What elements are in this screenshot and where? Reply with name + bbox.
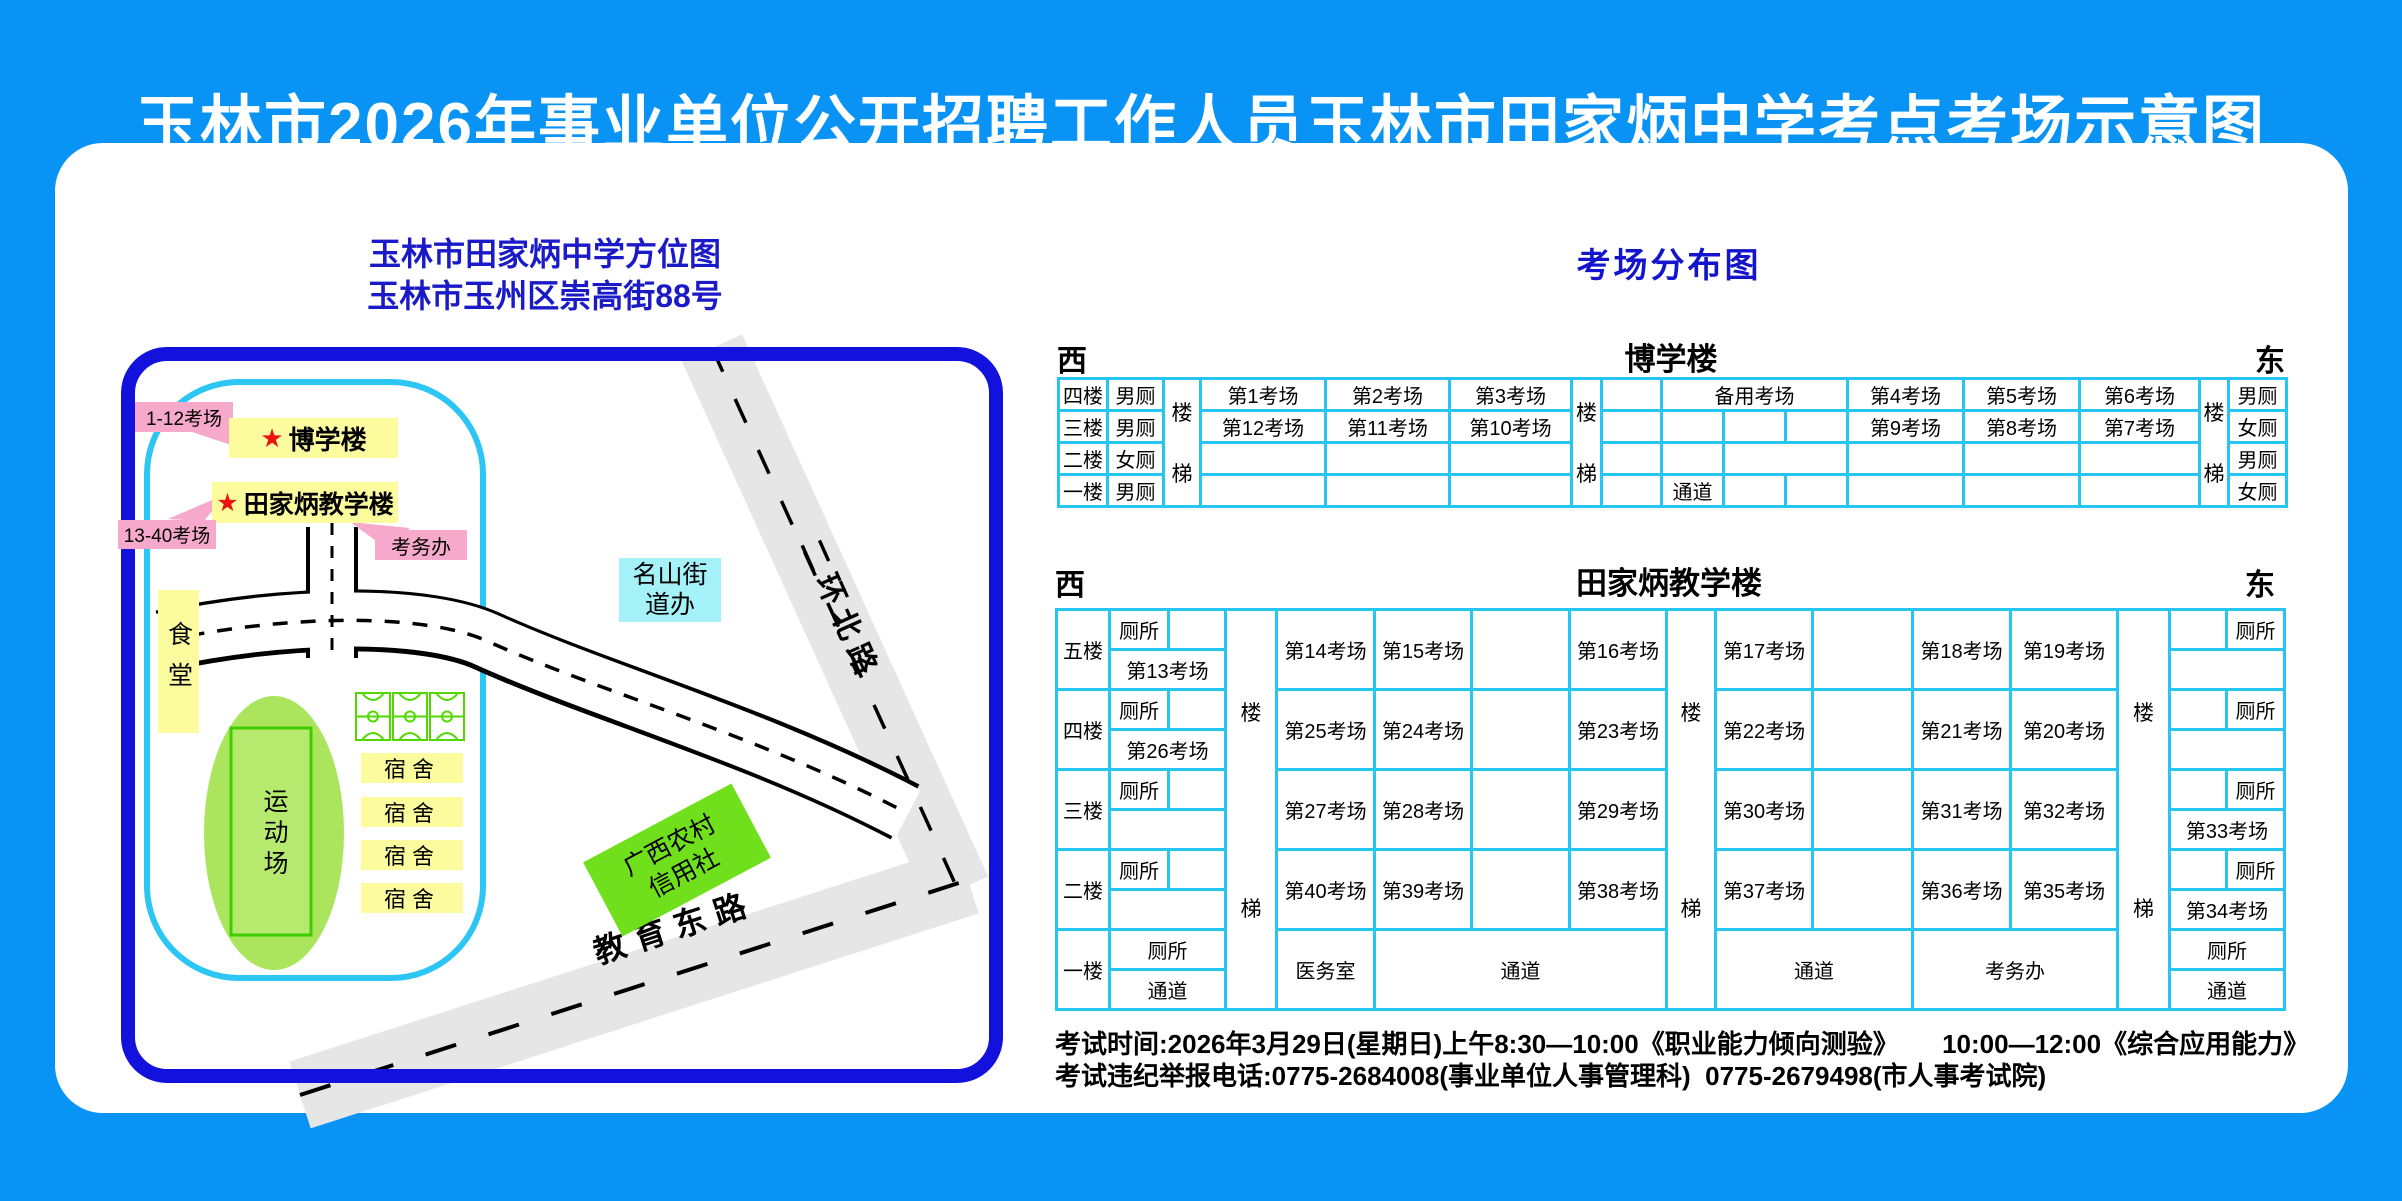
empty-cell — [1450, 443, 1572, 475]
label-street-office: 名山街 道办 — [619, 558, 721, 622]
room-cell: 第21考场 — [1913, 690, 2011, 770]
distribution-title: 考场分布图 — [1055, 238, 2283, 287]
empty-cell — [2170, 730, 2285, 770]
empty-cell — [2080, 475, 2200, 507]
empty-cell — [1602, 411, 1662, 443]
empty-cell — [1964, 475, 2080, 507]
toilet-cell: 男厕 — [2229, 443, 2287, 475]
table2-east-label: 东 — [1055, 560, 2275, 604]
room-cell: 第30考场 — [1716, 770, 1813, 850]
passage-cell: 通道 — [2170, 970, 2285, 1010]
empty-cell — [2080, 443, 2200, 475]
empty-cell — [1724, 443, 1848, 475]
dorm-text: 宿舍 — [384, 882, 440, 914]
passage-cell: 通道 — [1375, 930, 1667, 1010]
room-cell: 第28考场 — [1375, 770, 1472, 850]
empty-cell — [1848, 443, 1964, 475]
empty-cell — [1472, 850, 1570, 930]
room-cell: 第38考场 — [1570, 850, 1667, 930]
room-cell: 第25考场 — [1277, 690, 1375, 770]
room-cell: 第39考场 — [1375, 850, 1472, 930]
toilet-cell: 男厕 — [1108, 475, 1164, 507]
floor-cell: 三楼 — [1057, 770, 1110, 850]
dorm-text: 宿舍 — [384, 796, 440, 828]
empty-cell — [1169, 850, 1226, 890]
floor-cell: 二楼 — [1059, 443, 1108, 475]
room-cell: 第35考场 — [2011, 850, 2118, 930]
room-cell: 第29考场 — [1570, 770, 1667, 850]
stair-bottom: 梯 — [2204, 458, 2225, 488]
dorm-text: 宿舍 — [384, 839, 440, 871]
stair-top: 楼 — [1241, 697, 1262, 727]
floor-cell: 四楼 — [1057, 690, 1110, 770]
stair-top: 楼 — [1576, 397, 1597, 427]
room-cell: 第11考场 — [1326, 411, 1450, 443]
room-cell: 第15考场 — [1375, 610, 1472, 690]
room-cell: 第13考场 — [1110, 650, 1226, 690]
toilet-cell: 厕所 — [1110, 610, 1169, 650]
table2-row-f5a: 五楼 厕所 楼梯 第14考场 第15考场 第16考场 楼梯 第17考场 第18考… — [1057, 610, 2285, 650]
room-cell: 第14考场 — [1277, 610, 1375, 690]
toilet-cell: 厕所 — [2227, 690, 2285, 730]
empty-cell — [1110, 810, 1226, 850]
table1-east-label: 东 — [1057, 336, 2285, 380]
room-cell: 第20考场 — [2011, 690, 2118, 770]
room-cell: 第3考场 — [1450, 379, 1572, 411]
empty-cell — [1813, 850, 1913, 930]
toilet-cell: 女厕 — [2229, 475, 2287, 507]
stair-cell: 楼梯 — [2200, 379, 2229, 507]
exam-office-map-text: 考务办 — [391, 531, 451, 560]
empty-cell — [1169, 770, 1226, 810]
empty-cell — [1602, 443, 1662, 475]
stair-top: 楼 — [1681, 697, 1702, 727]
toilet-cell: 厕所 — [1110, 690, 1169, 730]
stair-bottom: 梯 — [1172, 458, 1193, 488]
toilet-cell: 厕所 — [1110, 930, 1226, 970]
label-dorm-4: 宿舍 — [361, 883, 463, 913]
room-cell: 第23考场 — [1570, 690, 1667, 770]
room-cell: 第36考场 — [1913, 850, 2011, 930]
empty-cell — [1472, 610, 1570, 690]
stair-cell: 楼梯 — [1164, 379, 1201, 507]
toilet-cell: 女厕 — [1108, 443, 1164, 475]
stair-bottom: 梯 — [1241, 893, 1262, 923]
room-cell: 第18考场 — [1913, 610, 2011, 690]
toilet-cell: 厕所 — [2227, 610, 2285, 650]
empty-cell — [1662, 411, 1724, 443]
floor-cell: 五楼 — [1057, 610, 1110, 690]
label-dorm-3: 宿舍 — [361, 840, 463, 870]
empty-cell — [1110, 890, 1226, 930]
label-canteen: 食堂 — [158, 590, 199, 733]
boxue-building-table: 四楼 男厕 楼梯 第1考场 第2考场 第3考场 楼梯 备用考场 第4考场 第5考… — [1057, 377, 2288, 508]
toilet-cell: 厕所 — [2170, 930, 2285, 970]
empty-cell — [1472, 770, 1570, 850]
empty-cell — [1813, 690, 1913, 770]
room-cell: 第40考场 — [1277, 850, 1375, 930]
room-cell: 第31考场 — [1913, 770, 2011, 850]
map-header-line2: 玉林市玉州区崇高街88号 — [125, 276, 965, 318]
table1-row-floor4: 四楼 男厕 楼梯 第1考场 第2考场 第3考场 楼梯 备用考场 第4考场 第5考… — [1059, 379, 2287, 411]
room-cell: 第17考场 — [1716, 610, 1813, 690]
empty-cell — [1472, 690, 1570, 770]
stair-top: 楼 — [2133, 697, 2154, 727]
empty-cell — [2170, 690, 2227, 730]
room-cell: 第6考场 — [2080, 379, 2200, 411]
room-cell: 第26考场 — [1110, 730, 1226, 770]
toilet-cell: 厕所 — [1110, 850, 1169, 890]
exam-office-cell: 考务办 — [1913, 930, 2118, 1010]
boxue-text: 博学楼 — [289, 420, 367, 457]
map-header-line1: 玉林市田家炳中学方位图 — [125, 234, 965, 276]
room-cell: 第27考场 — [1277, 770, 1375, 850]
empty-cell — [1326, 475, 1450, 507]
empty-cell — [1813, 770, 1913, 850]
sports-field-text: 运动场 — [256, 788, 292, 881]
empty-cell — [1201, 443, 1326, 475]
passage-cell: 通道 — [1110, 970, 1226, 1010]
empty-cell — [1602, 475, 1662, 507]
stair-top: 楼 — [2204, 397, 2225, 427]
toilet-cell: 男厕 — [1108, 411, 1164, 443]
stair-bottom: 梯 — [2133, 893, 2154, 923]
empty-cell — [1724, 411, 1786, 443]
stair-cell: 楼梯 — [2118, 610, 2170, 1010]
stair-cell: 楼梯 — [1572, 379, 1602, 507]
table1-row-floor1: 一楼 男厕 通道 女厕 — [1059, 475, 2287, 507]
empty-cell — [2170, 610, 2227, 650]
table1-row-floor3: 三楼 男厕 第12考场 第11考场 第10考场 第9考场 第8考场 第7考场 女… — [1059, 411, 2287, 443]
toilet-cell: 厕所 — [1110, 770, 1169, 810]
floor-cell: 一楼 — [1057, 930, 1110, 1010]
stair-bottom: 梯 — [1576, 458, 1597, 488]
label-exam-office-map: 考务办 — [375, 530, 467, 560]
label-dorm-2: 宿舍 — [361, 797, 463, 827]
room-cell: 第32考场 — [2011, 770, 2118, 850]
table1-row-floor2: 二楼 女厕 男厕 — [1059, 443, 2287, 475]
empty-cell — [1813, 610, 1913, 690]
street-office-line2: 道办 — [632, 590, 707, 620]
toilet-cell: 女厕 — [2229, 411, 2287, 443]
empty-cell — [2170, 650, 2285, 690]
passage-cell: 通道 — [1716, 930, 1913, 1010]
passage-cell: 通道 — [1662, 475, 1724, 507]
room-cell: 第34考场 — [2170, 890, 2285, 930]
floor-cell: 一楼 — [1059, 475, 1108, 507]
room-cell: 第16考场 — [1570, 610, 1667, 690]
empty-cell — [1450, 475, 1572, 507]
label-sports-field: 运动场 — [252, 772, 296, 896]
empty-cell — [1201, 475, 1326, 507]
room-cell: 第24考场 — [1375, 690, 1472, 770]
empty-cell — [1724, 475, 1786, 507]
tianjiabing-text: 田家炳教学楼 — [244, 485, 394, 521]
label-rooms-1-12: 1-12考场 — [135, 402, 233, 432]
room-cell: 第4考场 — [1848, 379, 1964, 411]
room-cell: 第19考场 — [2011, 610, 2118, 690]
empty-cell — [1786, 475, 1848, 507]
label-rooms-1-12-text: 1-12考场 — [146, 404, 222, 431]
stair-top: 楼 — [1172, 397, 1193, 427]
floor-cell: 二楼 — [1057, 850, 1110, 930]
label-rooms-13-40: 13-40考场 — [118, 520, 216, 549]
room-cell: 第1考场 — [1201, 379, 1326, 411]
room-cell: 第9考场 — [1848, 411, 1964, 443]
footer-report-phone: 考试违纪举报电话:0775-2684008(事业单位人事管理科) 0775-26… — [1055, 1056, 2046, 1093]
star-icon: ★ — [216, 488, 238, 518]
empty-cell — [2170, 770, 2227, 810]
label-boxue-building: ★ 博学楼 — [229, 418, 398, 458]
room-cell: 第10考场 — [1450, 411, 1572, 443]
toilet-cell: 男厕 — [2229, 379, 2287, 411]
empty-cell — [1786, 411, 1848, 443]
stair-cell: 楼梯 — [1226, 610, 1277, 1010]
room-cell: 第8考场 — [1964, 411, 2080, 443]
empty-cell — [2170, 850, 2227, 890]
empty-cell — [1848, 475, 1964, 507]
dorm-text: 宿舍 — [384, 752, 440, 784]
label-dorm-1: 宿舍 — [361, 753, 463, 783]
room-cell: 第7考场 — [2080, 411, 2200, 443]
room-cell: 第5考场 — [1964, 379, 2080, 411]
empty-cell — [1964, 443, 2080, 475]
map-header: 玉林市田家炳中学方位图 玉林市玉州区崇高街88号 — [125, 234, 965, 317]
empty-cell — [1169, 610, 1226, 650]
canteen-text: 食堂 — [161, 621, 197, 703]
room-cell: 第12考场 — [1201, 411, 1326, 443]
toilet-cell: 厕所 — [2227, 770, 2285, 810]
room-cell: 第2考场 — [1326, 379, 1450, 411]
stair-cell: 楼梯 — [1667, 610, 1716, 1010]
room-cell: 第37考场 — [1716, 850, 1813, 930]
label-rooms-13-40-text: 13-40考场 — [124, 521, 211, 548]
empty-cell — [1169, 690, 1226, 730]
empty-cell — [1602, 379, 1662, 411]
backup-room-cell: 备用考场 — [1662, 379, 1848, 411]
room-cell: 第33考场 — [2170, 810, 2285, 850]
label-tianjiabing-building: ★ 田家炳教学楼 — [212, 482, 398, 523]
tianjiabing-building-table: 五楼 厕所 楼梯 第14考场 第15考场 第16考场 楼梯 第17考场 第18考… — [1055, 608, 2286, 1011]
medical-room-cell: 医务室 — [1277, 930, 1375, 1010]
toilet-cell: 男厕 — [1108, 379, 1164, 411]
floor-cell: 四楼 — [1059, 379, 1108, 411]
stair-bottom: 梯 — [1681, 893, 1702, 923]
poster: { "title": "玉林市2026年事业单位公开招聘工作人员玉林市田家炳中学… — [0, 0, 2402, 1201]
room-cell: 第22考场 — [1716, 690, 1813, 770]
toilet-cell: 厕所 — [2227, 850, 2285, 890]
empty-cell — [1662, 443, 1724, 475]
floor-cell: 三楼 — [1059, 411, 1108, 443]
empty-cell — [1326, 443, 1450, 475]
star-icon: ★ — [260, 423, 283, 454]
street-office-line1: 名山街 — [632, 560, 707, 590]
